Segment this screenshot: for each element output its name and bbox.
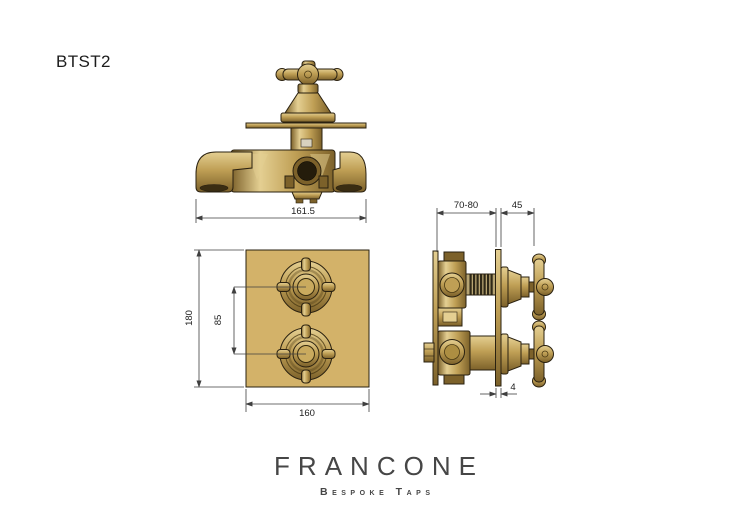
brand-tagline: Bespoke Taps xyxy=(0,486,750,498)
front-view: 180 85 160 xyxy=(184,250,369,419)
brand-logo: FRANCONE Bespoke Taps xyxy=(0,451,750,498)
dim-front-centers-label: 85 xyxy=(213,315,224,326)
dim-side-plate-label: 4 xyxy=(510,382,515,393)
dim-side-depth-label: 70-80 xyxy=(454,200,478,211)
side-trim-bottom xyxy=(501,321,554,387)
page: BTST2 xyxy=(0,0,750,530)
side-trim-top xyxy=(501,254,554,320)
side-view: 70-80 45 4 xyxy=(424,200,554,398)
dim-side-handle-label: 45 xyxy=(512,200,523,211)
top-view: 161.5 xyxy=(196,61,366,223)
brand-name: FRANCONE xyxy=(0,451,750,482)
dim-top-width-label: 161.5 xyxy=(291,206,315,217)
wall-plate-side xyxy=(496,250,502,387)
dim-front-width-label: 160 xyxy=(299,408,315,419)
wall-plate-top xyxy=(246,123,366,128)
dim-front-height-label: 180 xyxy=(184,310,195,326)
